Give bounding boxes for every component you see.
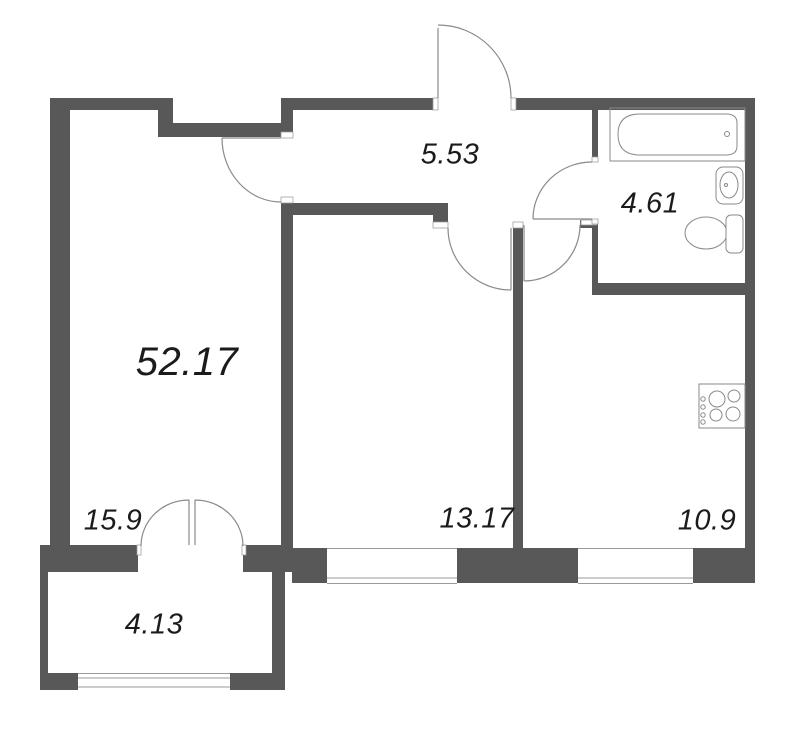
- total-area-label: 52.17: [136, 342, 239, 382]
- balcony-french-door-icon: [141, 500, 243, 546]
- jamb-marker: [242, 545, 246, 555]
- stove-icon: [699, 384, 745, 428]
- bedroom-window-icon: [327, 549, 457, 584]
- wall-outer-bottom-a: [292, 548, 327, 583]
- wall-outer-bottom-b: [457, 548, 578, 583]
- kitchen-window-icon: [578, 549, 693, 584]
- wall-bathroom-bottom: [592, 283, 755, 295]
- fixtures: [610, 108, 745, 428]
- living-room-area-label: 15.9: [84, 507, 142, 536]
- bedroom-door-icon: [448, 228, 511, 290]
- floor-plan-drawing: [0, 0, 800, 734]
- wall-bathroom-left-upper: [592, 110, 598, 162]
- wall-balcony-bottom-left: [40, 673, 78, 690]
- living-room-door-icon: [222, 138, 281, 202]
- bathroom-area-label: 4.61: [621, 190, 679, 219]
- wall-balcony-top-left: [40, 545, 138, 572]
- jamb-marker: [433, 98, 438, 110]
- wall-outer-left: [50, 98, 70, 572]
- wall-top-notched: [158, 123, 293, 137]
- bathtub-icon: [610, 108, 745, 161]
- balcony-window-icon: [78, 674, 230, 688]
- wall-hallway-bedroom: [288, 203, 433, 215]
- jamb-marker: [281, 197, 293, 203]
- hallway-area-label: 5.53: [421, 141, 479, 170]
- wall-balcony-top-right: [243, 545, 292, 572]
- wall-balcony-left: [40, 545, 48, 690]
- door-jambs: [137, 98, 598, 555]
- jamb-marker: [592, 219, 598, 224]
- jamb-marker: [433, 222, 448, 228]
- toilet-icon: [685, 215, 743, 253]
- wall-outer-top-middle: [293, 98, 437, 110]
- wall-living-hallway: [281, 202, 293, 548]
- entrance-door-icon: [438, 25, 511, 98]
- jamb-marker: [281, 132, 293, 138]
- jamb-marker: [511, 98, 516, 110]
- sink-icon: [716, 167, 743, 204]
- wall-bedroom-kitchen: [513, 222, 523, 548]
- jamb-marker: [592, 157, 598, 162]
- wall-outer-bottom-c: [693, 548, 755, 583]
- bedroom-area-label: 13.17: [439, 505, 514, 534]
- kitchen-door-icon: [524, 225, 580, 281]
- floor-plan: 52.17 15.9 5.53 4.61 13.17 10.9 4.13: [0, 0, 800, 734]
- wall-outer-right: [745, 98, 755, 583]
- wall-top-step: [158, 110, 173, 123]
- jamb-marker: [137, 545, 141, 555]
- kitchen-area-label: 10.9: [678, 507, 736, 536]
- jamb-marker: [513, 222, 523, 228]
- wall-bathroom-left-lower: [592, 228, 598, 283]
- bathroom-door-icon: [533, 162, 592, 219]
- balcony-area-label: 4.13: [125, 611, 183, 640]
- wall-balcony-right: [272, 572, 285, 690]
- wall-outer-top-left: [50, 98, 173, 110]
